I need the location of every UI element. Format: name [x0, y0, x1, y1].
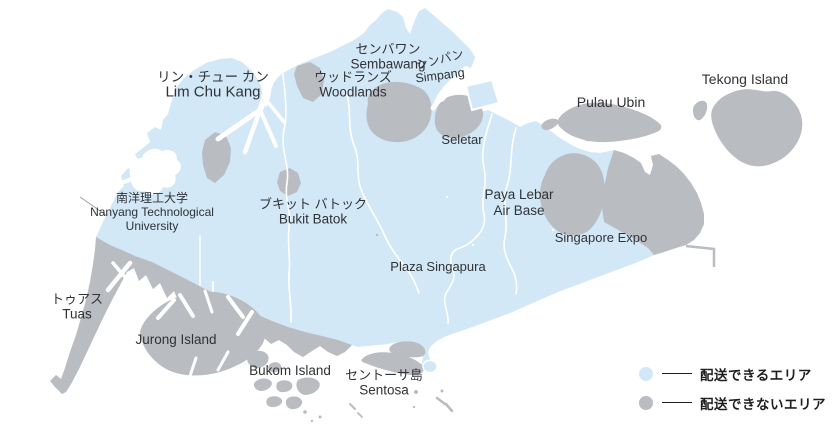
- label-paya-lebar-air-base: Paya Lebar Air Base: [484, 187, 553, 219]
- islet-dot-2: [376, 234, 378, 236]
- islet-dot-1: [572, 222, 575, 225]
- label-bukit-batok: ブキット バトック Bukit Batok: [259, 197, 367, 228]
- ubin-sliver-west: [541, 119, 558, 131]
- legend-label-deliverable: 配送できるエリア: [700, 364, 812, 384]
- south-islet-3: [311, 420, 313, 422]
- label-bukom-island: Bukom Island: [249, 363, 331, 379]
- label-seletar: Seletar: [441, 132, 482, 148]
- label-tuas: トゥアス Tuas: [51, 292, 103, 323]
- sentosa-islet-2: [441, 390, 444, 393]
- label-lim-chu-kang: リン・チュー カン Lim Chu Kang: [157, 70, 269, 101]
- non-deliverable-area-swatch: [639, 396, 653, 410]
- legend-item-deliverable: 配送できるエリア: [639, 366, 812, 381]
- deliverable-area-swatch: [639, 367, 653, 381]
- sentosa-deliverable-patch: [423, 360, 437, 372]
- legend-connector-line: [662, 402, 692, 403]
- south-islet-2: [319, 416, 322, 419]
- label-jurong-island: Jurong Island: [135, 332, 216, 348]
- south-islet-1: [303, 410, 307, 414]
- label-plaza-singapura: Plaza Singapura: [390, 259, 485, 275]
- sentosa-islet-4: [437, 398, 445, 404]
- label-singapore-expo: Singapore Expo: [555, 230, 648, 246]
- label-sentosa: セントーサ島 Sentosa: [345, 368, 423, 399]
- reservoir-dot-1: [446, 196, 448, 198]
- tekong-islet: [693, 101, 707, 120]
- sentosa-islet-7: [358, 413, 362, 417]
- sentosa-islet-5: [446, 404, 452, 411]
- reservoir-dot-2: [472, 244, 474, 246]
- islet-dot-3: [547, 176, 549, 178]
- legend-item-non-deliverable: 配送できないエリア: [639, 395, 826, 410]
- punggol-patch: [466, 80, 499, 110]
- sentosa-islet-6: [350, 404, 355, 409]
- label-nanyang-technological-university: 南洋理工大学 Nanyang Technological University: [90, 191, 214, 233]
- singapore-delivery-area-map: リン・チュー カン Lim Chu Kang センバワン Sembawang ウ…: [0, 0, 837, 444]
- legend-connector-line: [662, 373, 692, 374]
- tekong-island-shape: [711, 89, 802, 166]
- label-simpang: シンパン Simpang: [415, 53, 464, 84]
- label-pulau-ubin: Pulau Ubin: [577, 94, 646, 110]
- sentosa-islet-3: [413, 406, 415, 408]
- changi-breakwater: [686, 246, 714, 267]
- label-sembawang: センバワン Sembawang: [350, 42, 425, 73]
- label-tekong-island: Tekong Island: [702, 71, 788, 87]
- bukom-islands: [254, 378, 320, 410]
- label-woodlands: ウッドランズ Woodlands: [314, 70, 392, 101]
- legend-label-non-deliverable: 配送できないエリア: [700, 393, 826, 413]
